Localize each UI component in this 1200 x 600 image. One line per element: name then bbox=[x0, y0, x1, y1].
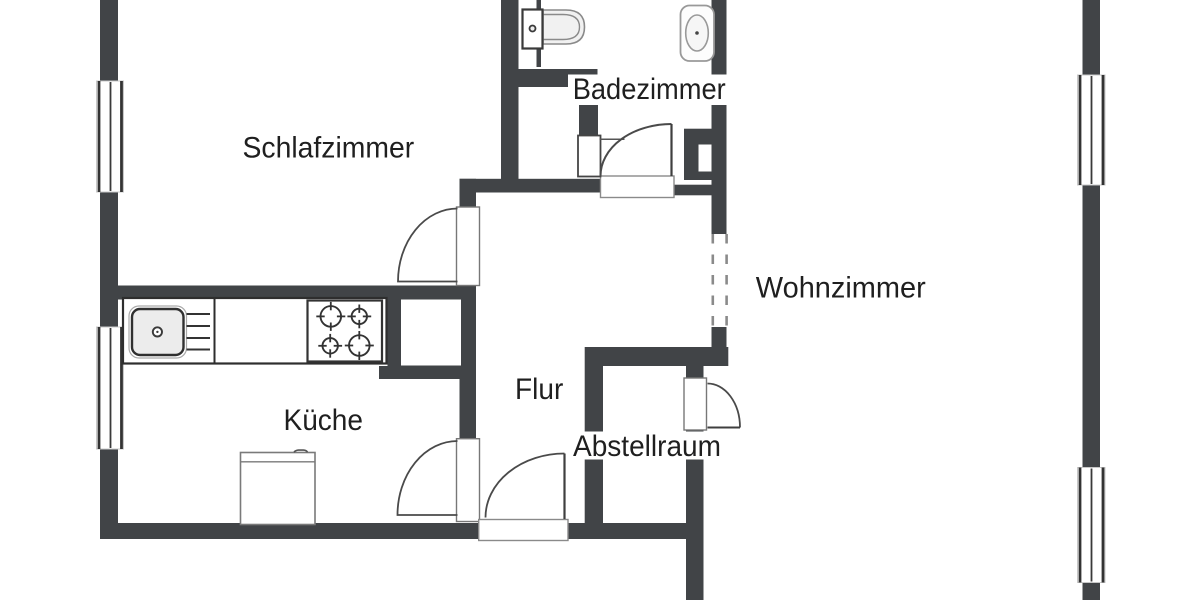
svg-text:Badezimmer: Badezimmer bbox=[573, 73, 726, 106]
svg-text:Wohnzimmer: Wohnzimmer bbox=[756, 272, 926, 305]
svg-text:Schlafzimmer: Schlafzimmer bbox=[243, 132, 415, 165]
svg-text:Flur: Flur bbox=[515, 373, 563, 406]
svg-text:Abstellraum: Abstellraum bbox=[573, 430, 721, 463]
svg-text:Küche: Küche bbox=[284, 404, 364, 437]
